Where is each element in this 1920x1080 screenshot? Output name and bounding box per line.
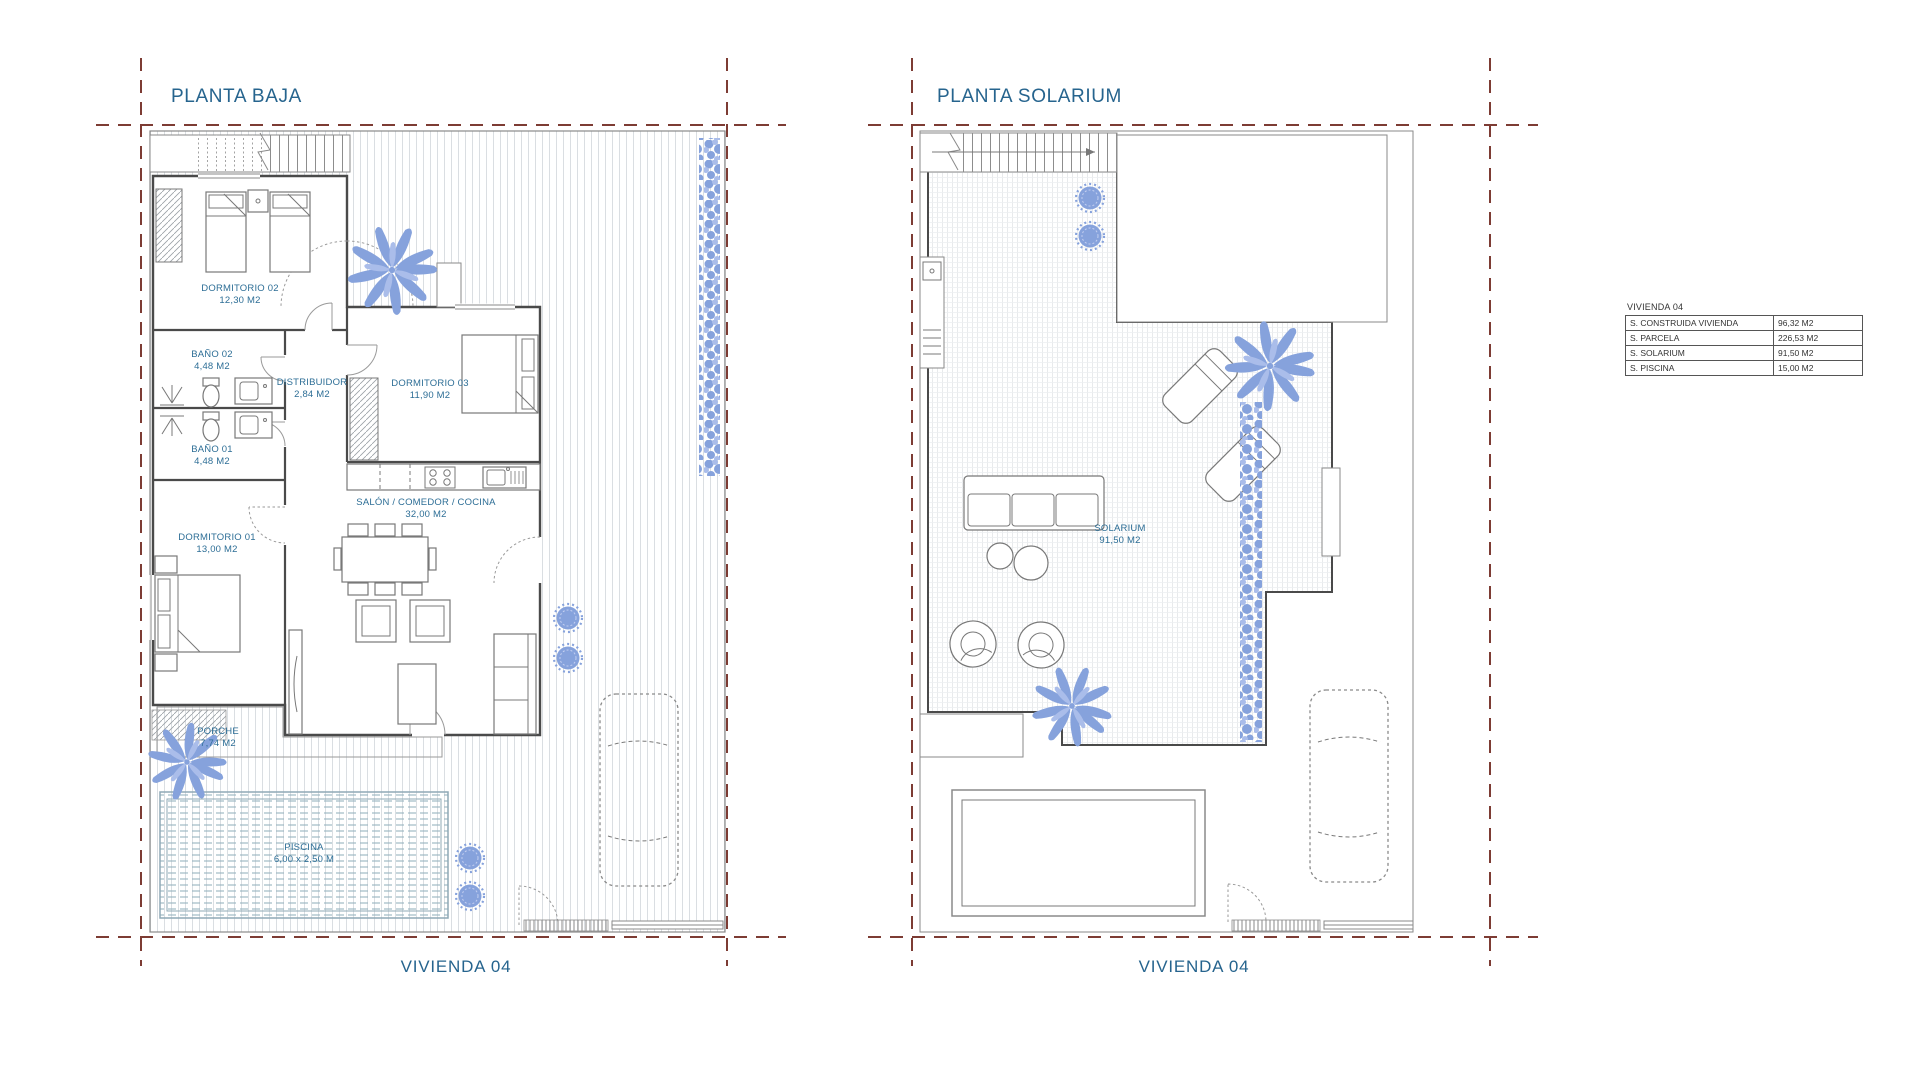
room-label: DISTRIBUIDOR bbox=[277, 377, 348, 388]
summary-title: VIVIENDA 04 bbox=[1627, 302, 1865, 312]
kitchen-counter bbox=[347, 464, 540, 490]
row-label: S. PARCELA bbox=[1626, 331, 1774, 346]
dining-table bbox=[334, 524, 436, 595]
chimney bbox=[437, 263, 461, 307]
row-value: 15,00 M2 bbox=[1774, 361, 1863, 376]
table-row: S. PARCELA 226,53 M2 bbox=[1626, 331, 1863, 346]
hedge-strip bbox=[1240, 402, 1262, 742]
room-label: PORCHE bbox=[197, 726, 239, 737]
row-label: S. PISCINA bbox=[1626, 361, 1774, 376]
plan-drawing: DORMITORIO 02 12,30 M2 BAÑO 02 4,48 M2 D… bbox=[0, 0, 1920, 1080]
area-summary: VIVIENDA 04 S. CONSTRUIDA VIVIENDA 96,32… bbox=[1625, 302, 1865, 376]
room-label: BAÑO 02 bbox=[191, 349, 233, 360]
room-label: SALÓN / COMEDOR / COCINA bbox=[356, 497, 496, 508]
svg-text:12,30 M2: 12,30 M2 bbox=[219, 295, 260, 306]
planta-solarium-plan: SOLARIUM 91,50 M2 bbox=[868, 58, 1538, 966]
room-label: SOLARIUM bbox=[1094, 523, 1145, 534]
planta-baja-plan: DORMITORIO 02 12,30 M2 BAÑO 02 4,48 M2 D… bbox=[96, 58, 786, 966]
row-value: 91,50 M2 bbox=[1774, 346, 1863, 361]
right-plan-footer: VIVIENDA 04 bbox=[1139, 957, 1250, 977]
hedge-strip bbox=[699, 138, 720, 476]
room-label: DORMITORIO 03 bbox=[391, 378, 468, 389]
pool-outline bbox=[952, 790, 1205, 916]
svg-text:13,00 M2: 13,00 M2 bbox=[196, 544, 237, 555]
solarium-sofa bbox=[964, 476, 1104, 530]
svg-text:7,74 M2: 7,74 M2 bbox=[200, 738, 236, 749]
svg-text:32,00 M2: 32,00 M2 bbox=[405, 509, 446, 520]
room-label: DORMITORIO 01 bbox=[178, 532, 255, 543]
svg-text:4,48 M2: 4,48 M2 bbox=[194, 361, 230, 372]
room-labels-right: SOLARIUM 91,50 M2 bbox=[1094, 523, 1145, 546]
floorplan-sheet: PLANTA BAJA PLANTA SOLARIUM bbox=[0, 0, 1920, 1080]
planter bbox=[920, 714, 1023, 757]
svg-text:4,48 M2: 4,48 M2 bbox=[194, 456, 230, 467]
bbq-unit bbox=[920, 257, 944, 368]
table-row: S. PISCINA 15,00 M2 bbox=[1626, 361, 1863, 376]
svg-text:91,50 M2: 91,50 M2 bbox=[1099, 535, 1140, 546]
room-label: BAÑO 01 bbox=[191, 444, 233, 455]
row-value: 96,32 M2 bbox=[1774, 316, 1863, 331]
void-opening bbox=[1117, 135, 1387, 322]
table-row: S. CONSTRUIDA VIVIENDA 96,32 M2 bbox=[1626, 316, 1863, 331]
room-label: PISCINA bbox=[284, 842, 324, 853]
staircase bbox=[150, 133, 350, 172]
round-table bbox=[987, 543, 1013, 569]
svg-text:11,90 M2: 11,90 M2 bbox=[410, 390, 451, 401]
summary-table: S. CONSTRUIDA VIVIENDA 96,32 M2 S. PARCE… bbox=[1625, 315, 1863, 376]
svg-text:2,84 M2: 2,84 M2 bbox=[294, 389, 330, 400]
row-label: S. SOLARIUM bbox=[1626, 346, 1774, 361]
row-value: 226,53 M2 bbox=[1774, 331, 1863, 346]
room-label: DORMITORIO 02 bbox=[201, 283, 278, 294]
staircase-solarium bbox=[920, 133, 1117, 172]
svg-text:6,00 x 2,50 M: 6,00 x 2,50 M bbox=[274, 854, 334, 865]
bedroom2-furniture bbox=[156, 189, 310, 272]
round-table bbox=[1014, 546, 1048, 580]
row-label: S. CONSTRUIDA VIVIENDA bbox=[1626, 316, 1774, 331]
planter bbox=[1322, 468, 1340, 556]
left-plan-footer: VIVIENDA 04 bbox=[401, 957, 512, 977]
table-row: S. SOLARIUM 91,50 M2 bbox=[1626, 346, 1863, 361]
